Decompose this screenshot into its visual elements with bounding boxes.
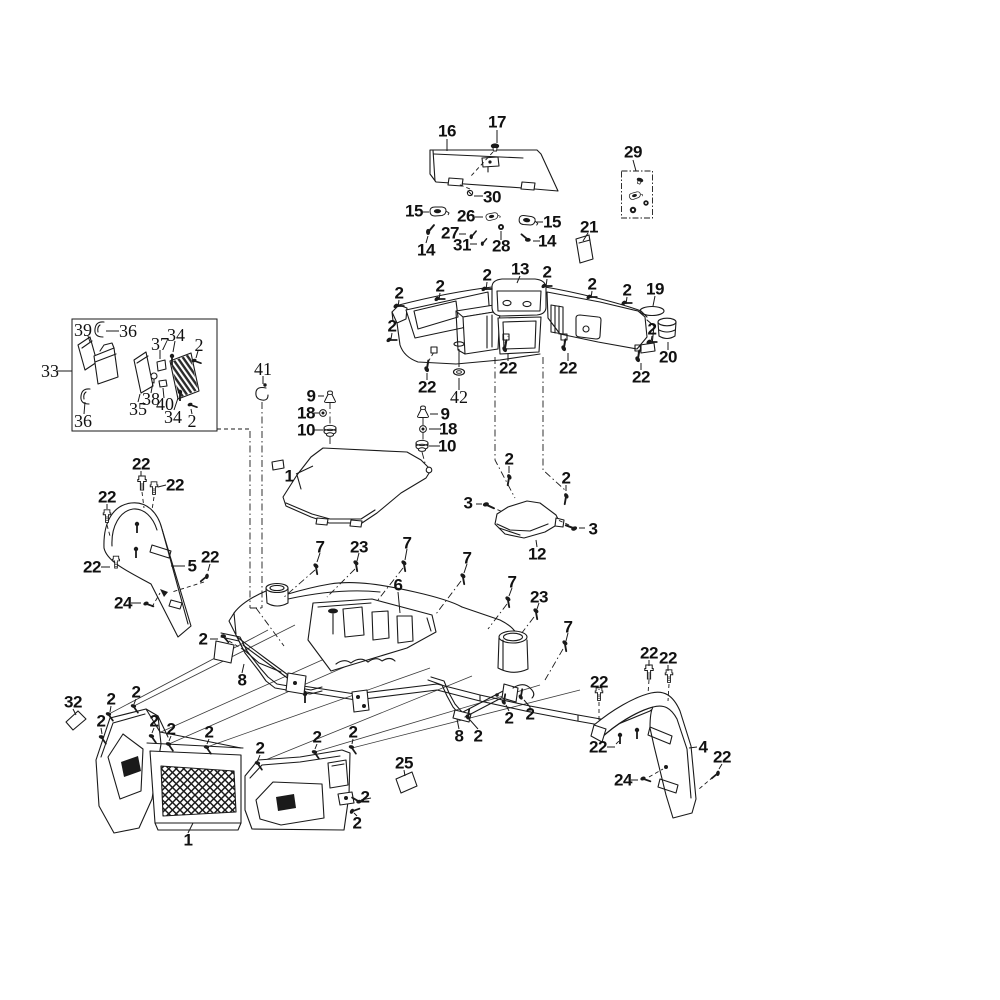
part-41-hook: [256, 383, 268, 400]
part-6-front-body: [229, 583, 662, 727]
callout-2: 2: [188, 412, 197, 430]
callout-34: 34: [164, 408, 182, 426]
part-3-screw-left: [482, 501, 494, 511]
callout-22: 22: [589, 739, 607, 756]
callout-10: 10: [297, 422, 315, 439]
callout-15: 15: [405, 203, 423, 220]
callout-3: 3: [464, 495, 473, 512]
callout-2: 2: [623, 282, 632, 299]
callout-2: 2: [388, 318, 397, 335]
callout-32: 32: [64, 694, 82, 711]
part-9-clip-left: [325, 391, 336, 403]
callout-22: 22: [559, 360, 577, 377]
callout-28: 28: [492, 238, 510, 255]
callout-24: 24: [114, 595, 132, 612]
callout-2: 2: [150, 713, 159, 730]
callout-31: 31: [453, 237, 471, 254]
callout-23: 23: [350, 539, 368, 556]
part-15-switch-right: [519, 215, 539, 227]
callout-2: 2: [97, 713, 106, 730]
callout-22: 22: [418, 379, 436, 396]
callout-2: 2: [353, 815, 362, 832]
part-9-clip-right: [418, 406, 429, 418]
callout-2: 2: [505, 710, 514, 727]
callout-2: 2: [107, 691, 116, 708]
callout-2: 2: [349, 724, 358, 741]
callout-2: 2: [588, 276, 597, 293]
part-19-ring: [640, 307, 664, 316]
callout-2: 2: [132, 684, 141, 701]
callout-22: 22: [83, 559, 101, 576]
part-1-hood: [272, 448, 432, 527]
screw-22-f4d: [712, 770, 720, 780]
callout-34: 34: [167, 326, 185, 344]
callout-1: 1: [285, 468, 294, 485]
part-13-dash-panel: [386, 279, 657, 364]
callout-2: 2: [199, 631, 208, 648]
part-12-cover: [495, 501, 564, 538]
part-31-screw: [481, 239, 487, 246]
callout-22: 22: [98, 489, 116, 506]
callout-7: 7: [463, 550, 472, 567]
callout-2: 2: [167, 721, 176, 738]
callout-33: 33: [41, 362, 59, 380]
callout-2: 2: [562, 470, 571, 487]
callout-41: 41: [254, 360, 272, 378]
callout-14: 14: [538, 233, 556, 250]
screw-7-b: [398, 559, 410, 571]
callout-22: 22: [166, 477, 184, 494]
callout-6: 6: [394, 577, 403, 594]
callout-22: 22: [632, 369, 650, 386]
callout-18: 18: [297, 405, 315, 422]
callout-2: 2: [436, 278, 445, 295]
callout-36: 36: [119, 322, 137, 340]
bolt-22-f4b: [665, 670, 673, 683]
callout-2: 2: [526, 706, 535, 723]
callout-2: 2: [195, 336, 204, 354]
callout-22: 22: [659, 650, 677, 667]
part-10-grommet-left: [324, 425, 336, 436]
callout-2: 2: [205, 724, 214, 741]
callout-2: 2: [505, 451, 514, 468]
part-14-screw-left: [426, 225, 434, 235]
part-24-screw-right: [640, 775, 651, 785]
callout-22: 22: [713, 749, 731, 766]
callout-19: 19: [646, 281, 664, 298]
screw-2-12a: [503, 473, 514, 485]
callout-2: 2: [395, 285, 404, 302]
part-42-grommet: [454, 369, 465, 375]
callout-2: 2: [474, 728, 483, 745]
callout-8: 8: [238, 672, 247, 689]
callout-2: 2: [361, 789, 370, 806]
callout-29: 29: [624, 144, 642, 161]
callout-20: 20: [659, 349, 677, 366]
callout-1: 1: [184, 832, 193, 849]
part-10-grommet-right: [416, 440, 428, 451]
screw-22-f5e: [201, 573, 209, 583]
callout-42: 42: [450, 388, 468, 406]
part-3-screw-right: [566, 522, 578, 533]
callout-4: 4: [699, 739, 708, 756]
callout-8: 8: [455, 728, 464, 745]
part-16-meter-cover: [430, 150, 558, 191]
callout-7: 7: [403, 535, 412, 552]
callout-36: 36: [74, 412, 92, 430]
callout-18: 18: [439, 421, 457, 438]
callout-2: 2: [648, 321, 657, 338]
callout-13: 13: [511, 261, 529, 278]
part-15-switch-left: [430, 207, 449, 216]
part-5-left-fender: [104, 503, 191, 637]
callout-9: 9: [307, 388, 316, 405]
callout-22: 22: [590, 674, 608, 691]
callout-3: 3: [589, 521, 598, 538]
callout-26: 26: [457, 208, 475, 225]
callout-24: 24: [614, 772, 632, 789]
callout-21: 21: [580, 219, 598, 236]
part-30-screw: [467, 190, 472, 195]
callout-39: 39: [74, 321, 92, 339]
part-25-plate: [396, 772, 417, 793]
callout-16: 16: [438, 123, 456, 140]
callout-14: 14: [417, 242, 435, 259]
part-20-cup: [658, 318, 676, 338]
callout-12: 12: [528, 546, 546, 563]
screw-7-c: [457, 572, 469, 584]
bolt-22-f5b: [150, 482, 158, 495]
callout-7: 7: [564, 619, 573, 636]
screw-2-12b: [560, 492, 571, 504]
part-29-switch-kit: [622, 171, 653, 218]
callout-7: 7: [316, 539, 325, 556]
bolt-22-f4a: [645, 665, 653, 679]
exploded-parts-diagram: 1617293015261521273128141413222222219220…: [0, 0, 1000, 1000]
callout-22: 22: [640, 645, 658, 662]
callout-15: 15: [543, 214, 561, 231]
callout-23: 23: [530, 589, 548, 606]
diagram-linework: [0, 0, 1000, 1000]
callout-30: 30: [483, 189, 501, 206]
callout-10: 10: [438, 438, 456, 455]
part-24-screw-left: [143, 600, 154, 610]
part-18-washer-left: [320, 410, 327, 417]
part-18-washer-right: [420, 426, 427, 433]
screw-7-d: [502, 595, 514, 607]
callout-2: 2: [256, 740, 265, 757]
callout-25: 25: [395, 755, 413, 772]
screw-23-b: [530, 607, 542, 619]
screw-7-e: [559, 639, 571, 651]
callout-7: 7: [508, 574, 517, 591]
callout-5: 5: [188, 558, 197, 575]
part-14-screw-right: [521, 234, 530, 241]
screw-23-a: [350, 559, 362, 571]
callout-22: 22: [499, 360, 517, 377]
part-28-nut: [498, 224, 504, 230]
callout-2: 2: [313, 729, 322, 746]
callout-2: 2: [543, 264, 552, 281]
bolt-22-f5a: [138, 476, 146, 490]
callout-17: 17: [488, 114, 506, 131]
callout-2: 2: [483, 267, 492, 284]
callout-22: 22: [201, 549, 219, 566]
part-32-plate: [66, 711, 86, 730]
callout-22: 22: [132, 456, 150, 473]
part-26-switch: [485, 212, 500, 221]
